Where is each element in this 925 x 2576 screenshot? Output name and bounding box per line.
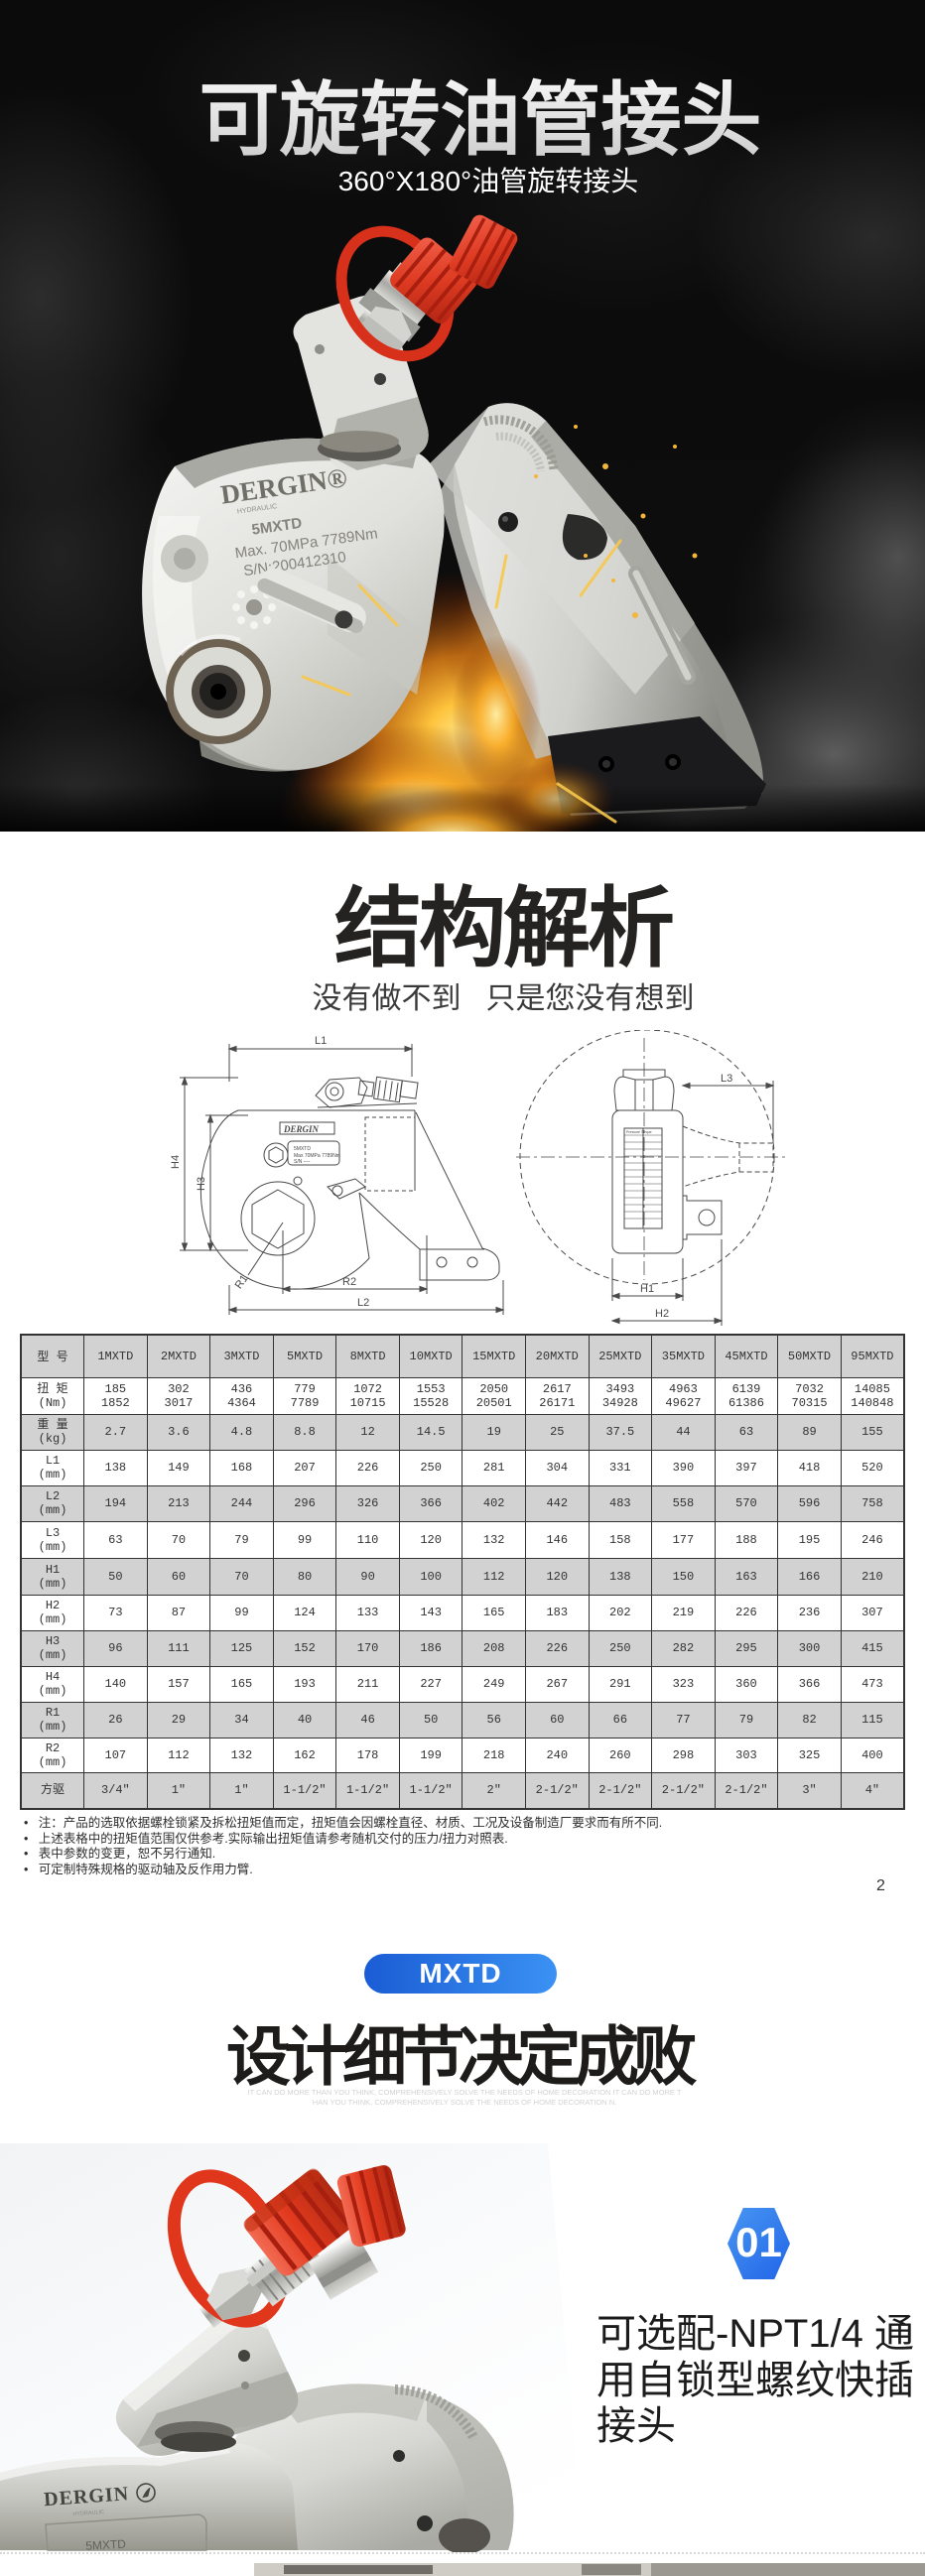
svg-text:L3: L3 xyxy=(721,1073,732,1085)
svg-text:5MXTD: 5MXTD xyxy=(294,1146,311,1152)
svg-text:R2: R2 xyxy=(342,1276,356,1288)
svg-text:Pressure Torque: Pressure Torque xyxy=(626,1130,652,1134)
svg-text:H1: H1 xyxy=(640,1283,654,1295)
svg-text:L2: L2 xyxy=(357,1297,369,1309)
svg-text:H2: H2 xyxy=(655,1308,669,1320)
svg-text:S/N ----: S/N ---- xyxy=(294,1159,311,1165)
svg-text:L1: L1 xyxy=(315,1035,327,1047)
svg-text:DERGIN: DERGIN xyxy=(283,1124,320,1134)
svg-text:5MXTD: 5MXTD xyxy=(85,2537,127,2552)
svg-text:H4: H4 xyxy=(170,1155,182,1169)
svg-text:R1: R1 xyxy=(233,1273,251,1291)
